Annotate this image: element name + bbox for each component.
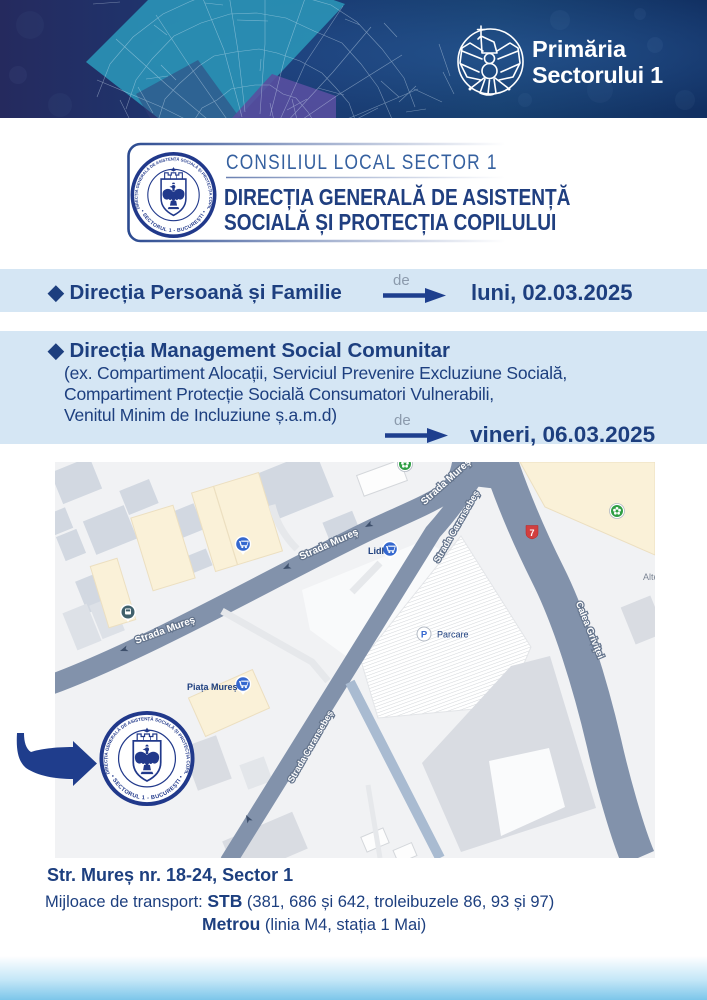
svg-text:Lidl: Lidl [368,546,384,556]
svg-text:Piața Mureș: Piața Mureș [187,682,238,692]
svg-text:Sectorului 1: Sectorului 1 [532,62,663,88]
svg-text:7: 7 [529,528,534,538]
svg-text:Primăria: Primăria [532,36,627,62]
svg-text:Alte: Alte [643,572,659,582]
svg-text:P: P [421,629,428,640]
svg-text:Parcare: Parcare [437,630,469,640]
